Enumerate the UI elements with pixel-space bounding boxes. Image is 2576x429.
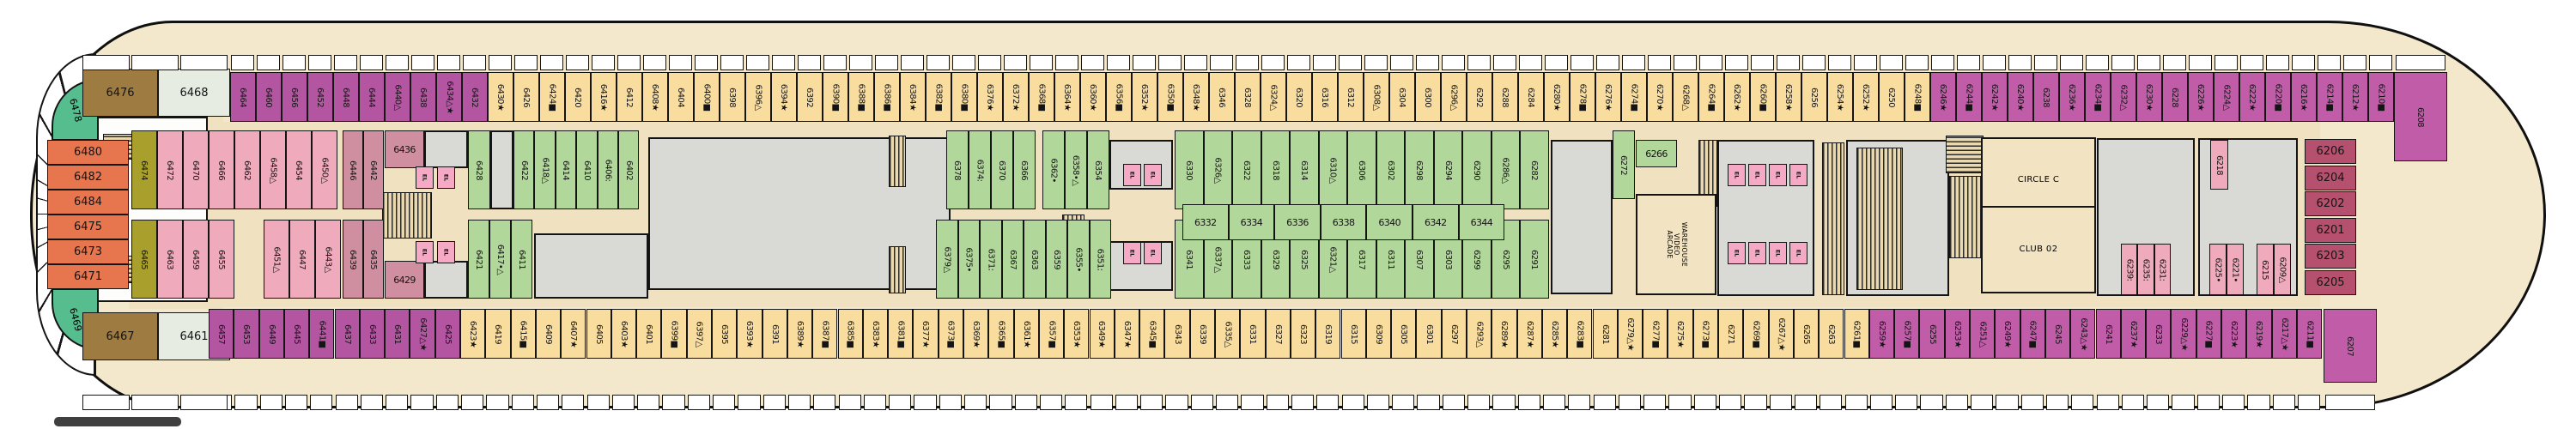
- cabin-6210: 6210■: [2368, 72, 2394, 122]
- cabin-6432: 6432: [462, 72, 488, 122]
- balcony: [361, 395, 383, 410]
- cabin-6302: 6302: [1376, 130, 1406, 209]
- cabin-6231: 6231:: [2154, 244, 2171, 295]
- balcony: [2240, 55, 2263, 70]
- balcony: [2197, 395, 2220, 410]
- balcony: [1236, 55, 1259, 70]
- cabin-6276: 6276★: [1595, 72, 1621, 122]
- elevator-cell: EL: [1789, 242, 1807, 264]
- balcony: [2325, 395, 2375, 410]
- cabin-6457: 6457: [209, 309, 234, 359]
- cabin-6394: 6394★: [771, 72, 797, 122]
- balcony: [1267, 395, 1289, 410]
- room-club02: CLUB 02: [1981, 206, 2096, 293]
- balcony: [1744, 395, 1766, 410]
- cabin-6447: 6447: [289, 220, 315, 299]
- balcony: [1880, 55, 1903, 70]
- cabin-6292: 6292: [1467, 72, 1492, 122]
- balcony: [231, 55, 254, 70]
- balcony: [2122, 395, 2144, 410]
- balcony: [1004, 55, 1027, 70]
- balcony: [592, 55, 615, 70]
- balcony: [2369, 55, 2392, 70]
- elevator-cell: EL: [1144, 242, 1162, 264]
- cabin-6338: 6338: [1321, 204, 1367, 240]
- balcony: [1492, 395, 1515, 410]
- cabin-6348: 6348★: [1183, 72, 1209, 122]
- cabin-6446: 6446: [343, 130, 363, 209]
- cabin-6243: 6243△★: [2070, 309, 2095, 359]
- interior-room: [1551, 140, 1613, 294]
- cabin-6452: 6452: [307, 72, 333, 122]
- cabin-6468: 6468: [158, 69, 230, 117]
- cabin-6355: 6355•: [1067, 220, 1090, 299]
- elevator-cell: EL: [1789, 164, 1807, 186]
- cabin-6385: 6385■: [838, 309, 863, 359]
- cabin-6209: 6209△: [2274, 244, 2291, 295]
- balcony: [662, 395, 684, 410]
- cabin-6393: 6393★: [737, 309, 762, 359]
- cabin-6368: 6368■: [1029, 72, 1054, 122]
- cabin-6465: 6465: [131, 220, 157, 299]
- cabin-6424: 6424■: [539, 72, 565, 122]
- balcony: [461, 395, 483, 410]
- balcony: [1519, 55, 1542, 70]
- balcony: [489, 55, 512, 70]
- cabin-6253: 6253★: [1945, 309, 1970, 359]
- balcony: [411, 55, 434, 70]
- cabin-6473: 6473: [47, 239, 129, 264]
- balcony: [798, 55, 821, 70]
- cabin-6260: 6260■: [1750, 72, 1776, 122]
- balcony: [436, 395, 459, 410]
- cabin-6227: 6227■: [2196, 309, 2221, 359]
- cabin-6234: 6234■: [2085, 72, 2111, 122]
- balcony: [1828, 55, 1851, 70]
- balcony: [2396, 55, 2445, 70]
- cabin-6327: 6327: [1266, 309, 1291, 359]
- balcony: [1920, 395, 1942, 410]
- cabin-6377: 6377★: [913, 309, 938, 359]
- cabin-6335: 6335△: [1215, 309, 1240, 359]
- balcony: [643, 55, 666, 70]
- balcony: [1443, 395, 1465, 410]
- balcony: [1648, 55, 1671, 70]
- balcony: [512, 395, 534, 410]
- cabin-6369: 6369★: [963, 309, 988, 359]
- room-arcade: WAREHOUSE VIDEO ARCADE: [1636, 194, 1716, 295]
- balcony: [1905, 55, 1929, 70]
- balcony: [788, 395, 811, 410]
- interior-room: [490, 130, 513, 209]
- balcony: [260, 395, 283, 410]
- cabin-6444: 6444: [359, 72, 385, 122]
- cabin-6240: 6240★: [2008, 72, 2033, 122]
- stairs-icon: [1822, 142, 1844, 295]
- balcony: [2292, 55, 2315, 70]
- cabin-6305: 6305: [1391, 309, 1416, 359]
- cabin-6396: 6396△: [745, 72, 771, 122]
- cabin-6482: 6482: [47, 165, 129, 190]
- balcony: [310, 395, 332, 410]
- cabin-6250: 6250: [1879, 72, 1905, 122]
- balcony: [386, 395, 408, 410]
- cabin-6284: 6284: [1518, 72, 1544, 122]
- balcony: [901, 55, 924, 70]
- cabin-6364: 6364★: [1054, 72, 1080, 122]
- balcony: [1210, 55, 1233, 70]
- elevator-cell: EL: [1748, 164, 1766, 186]
- cabin-6362: 6362•: [1042, 130, 1065, 209]
- elevator-cell: EL: [416, 166, 434, 189]
- balcony: [463, 55, 486, 70]
- elevator-cell: EL: [1769, 164, 1787, 186]
- balcony: [1184, 55, 1207, 70]
- stairs-icon: [1949, 176, 1982, 258]
- cabin-6358: 6358•△: [1065, 130, 1087, 209]
- cabin-6411: 6411: [511, 220, 532, 299]
- balcony: [1313, 55, 1336, 70]
- cabin-6438: 6438: [410, 72, 436, 122]
- cabin-6263: 6263: [1819, 309, 1844, 359]
- balcony: [1895, 395, 1917, 410]
- interior-room: [424, 261, 468, 299]
- cabin-6218: 6218: [2210, 140, 2228, 190]
- balcony: [1261, 55, 1285, 70]
- elevator-cell: EL: [1748, 242, 1766, 264]
- balcony: [1040, 395, 1062, 410]
- cabin-6398: 6398: [720, 72, 745, 122]
- cabin-6431: 6431: [385, 309, 410, 359]
- cabin-6352: 6352★: [1132, 72, 1157, 122]
- cabin-6459: 6459: [183, 220, 209, 299]
- cabin-6224: 6224△: [2214, 72, 2239, 122]
- cabin-6315: 6315: [1341, 309, 1366, 359]
- balcony: [720, 55, 744, 70]
- balcony: [2060, 55, 2083, 70]
- cabin-6286: 6286△: [1492, 130, 1521, 209]
- cabin-6448: 6448: [333, 72, 359, 122]
- cabin-6271: 6271: [1718, 309, 1743, 359]
- balcony: [410, 395, 433, 410]
- cabin-6384: 6384★: [900, 72, 926, 122]
- balcony: [1241, 395, 1263, 410]
- balcony: [914, 395, 936, 410]
- balcony: [875, 55, 898, 70]
- balcony: [939, 395, 962, 410]
- stairs-icon: [1856, 148, 1903, 290]
- balcony: [1996, 395, 2018, 410]
- cabin-6462: 6462: [234, 130, 260, 209]
- cabin-6342: 6342: [1413, 204, 1459, 240]
- cabin-6289: 6289★: [1492, 309, 1516, 359]
- cabin-6255: 6255: [1919, 309, 1944, 359]
- stairs-icon: [1946, 136, 1984, 173]
- balcony: [180, 55, 228, 70]
- cabin-6386: 6386■: [874, 72, 900, 122]
- balcony: [889, 395, 911, 410]
- balcony: [688, 395, 710, 410]
- cabin-6416: 6416★: [591, 72, 617, 122]
- cabin-6230: 6230★: [2136, 72, 2162, 122]
- cabin-6242: 6242★: [1982, 72, 2008, 122]
- cabin-6247: 6247■: [2020, 309, 2045, 359]
- cabin-6285: 6285★: [1542, 309, 1567, 359]
- cabin-6422: 6422: [513, 130, 534, 209]
- cabin-6201: 6201: [2305, 218, 2356, 243]
- balcony: [1543, 395, 1565, 410]
- cabin-6375: 6375•: [958, 220, 981, 299]
- balcony: [1983, 55, 2006, 70]
- balcony: [1870, 395, 1893, 410]
- cabin-6334: 6334: [1229, 204, 1275, 240]
- balcony: [283, 55, 306, 70]
- balcony: [540, 55, 563, 70]
- cabin-6258: 6258★: [1776, 72, 1801, 122]
- balcony: [1091, 395, 1113, 410]
- cabin-6383: 6383★: [863, 309, 888, 359]
- cabin-6354: 6354: [1087, 130, 1109, 209]
- balcony: [1493, 55, 1516, 70]
- balcony: [713, 395, 735, 410]
- cabin-6326: 6326△: [1204, 130, 1233, 209]
- cabin-6225: 6225•: [2209, 244, 2227, 295]
- cabin-6470: 6470: [183, 130, 209, 209]
- cabin-6300: 6300: [1415, 72, 1441, 122]
- cabin-6454: 6454: [286, 130, 312, 209]
- cabin-6441: 6441■: [309, 309, 334, 359]
- balcony: [437, 55, 460, 70]
- cabin-6279: 6279△★: [1618, 309, 1643, 359]
- cabin-6374: 6374:: [969, 130, 991, 209]
- balcony: [1622, 55, 1645, 70]
- balcony: [1725, 55, 1748, 70]
- cabin-6283: 6283■: [1567, 309, 1592, 359]
- balcony: [131, 395, 179, 410]
- cabin-6443: 6443△: [315, 220, 341, 299]
- cabin-6262: 6262★: [1724, 72, 1750, 122]
- cabin-6245: 6245: [2045, 309, 2070, 359]
- balcony: [1643, 395, 1666, 410]
- cabin-6270: 6270★: [1647, 72, 1673, 122]
- cabin-6282: 6282: [1520, 130, 1549, 209]
- balcony: [2086, 55, 2109, 70]
- cabin-6320: 6320: [1286, 72, 1312, 122]
- balcony: [839, 395, 861, 410]
- cabin-6229: 6229△★: [2171, 309, 2196, 359]
- balcony: [2034, 55, 2057, 70]
- balcony: [82, 395, 130, 410]
- cabin-6319: 6319: [1315, 309, 1340, 359]
- balcony: [1015, 395, 1037, 410]
- cabin-6445: 6445: [284, 309, 309, 359]
- cabin-6390: 6390■: [823, 72, 848, 122]
- cabin-6268: 6268△: [1673, 72, 1698, 122]
- balcony: [669, 55, 692, 70]
- cabin-6219: 6219★: [2246, 309, 2271, 359]
- cabin-6274: 6274■: [1621, 72, 1647, 122]
- cabin-6372: 6372★: [1003, 72, 1029, 122]
- balcony: [1795, 395, 1817, 410]
- cabin-6347: 6347★: [1115, 309, 1139, 359]
- cabin-6451: 6451△: [264, 220, 289, 299]
- cabin-6340: 6340: [1366, 204, 1413, 240]
- cabin-6288: 6288: [1492, 72, 1518, 122]
- cabin-6287: 6287★: [1517, 309, 1542, 359]
- cabin-6433: 6433: [360, 309, 385, 359]
- balcony: [334, 55, 357, 70]
- cabin-6267: 6267△★: [1769, 309, 1794, 359]
- balcony: [1107, 55, 1130, 70]
- cabin-6418: 6418△: [534, 130, 555, 209]
- cabin-6366: 6366: [1013, 130, 1036, 209]
- cabin-6371: 6371:: [980, 220, 1002, 299]
- stairs-icon: [889, 246, 906, 293]
- cabin-6404: 6404: [668, 72, 694, 122]
- cabin-6244: 6244■: [1956, 72, 1982, 122]
- cabin-6475: 6475: [47, 214, 129, 239]
- balcony: [2298, 395, 2320, 410]
- cabin-6430: 6430★: [488, 72, 513, 122]
- cabin-6309: 6309: [1366, 309, 1391, 359]
- cabin-6316: 6316: [1312, 72, 1338, 122]
- balcony: [1845, 395, 1868, 410]
- balcony: [612, 395, 635, 410]
- cabin-6403: 6403★: [611, 309, 636, 359]
- elevator-cell: EL: [1123, 164, 1141, 186]
- balcony: [1777, 55, 1800, 70]
- balcony: [849, 55, 872, 70]
- balcony: [234, 395, 257, 410]
- balcony: [562, 395, 584, 410]
- cabin-6472: 6472: [157, 130, 183, 209]
- cabin-6429: 6429: [385, 261, 424, 299]
- balcony: [1367, 395, 1389, 410]
- balcony: [964, 395, 987, 410]
- cabin-6278: 6278■: [1570, 72, 1595, 122]
- cabin-6435: 6435: [363, 220, 384, 299]
- balcony: [131, 55, 179, 70]
- cabin-6420: 6420: [565, 72, 591, 122]
- cabin-6207: 6207: [2324, 309, 2377, 383]
- cabin-6215: 6215: [2257, 244, 2274, 295]
- cabin-6301: 6301: [1416, 309, 1441, 359]
- cabin-6273: 6273■: [1693, 309, 1718, 359]
- cabin-6442: 6442: [363, 130, 384, 209]
- cabin-6426: 6426: [513, 72, 539, 122]
- cabin-6467: 6467: [82, 312, 158, 360]
- cabin-6382: 6382■: [926, 72, 951, 122]
- balcony: [1055, 55, 1078, 70]
- cabin-6328: 6328: [1235, 72, 1261, 122]
- cabin-6367: 6367: [1002, 220, 1024, 299]
- cabin-6419: 6419: [485, 309, 510, 359]
- cabin-6236: 6236★: [2059, 72, 2085, 122]
- cabin-6222: 6222★: [2239, 72, 2265, 122]
- cabin-6349: 6349★: [1090, 309, 1115, 359]
- cabin-6332: 6332: [1182, 204, 1229, 240]
- balcony: [1719, 395, 1741, 410]
- legend-bar: [54, 417, 181, 426]
- cabin-6449: 6449: [259, 309, 284, 359]
- balcony: [1133, 55, 1156, 70]
- balcony: [1820, 395, 1842, 410]
- balcony: [1668, 395, 1691, 410]
- cabin-6232: 6232△: [2111, 72, 2136, 122]
- cabin-6261: 6261■: [1844, 309, 1869, 359]
- balcony: [1971, 395, 1993, 410]
- cabin-6205: 6205: [2305, 270, 2356, 295]
- elevator-cell: EL: [416, 241, 434, 263]
- cabin-6259: 6259★: [1869, 309, 1894, 359]
- cabin-6399: 6399■: [661, 309, 686, 359]
- balcony: [2111, 55, 2135, 70]
- balcony: [566, 55, 589, 70]
- cabin-6460: 6460: [256, 72, 282, 122]
- cabin-6378: 6378: [946, 130, 969, 209]
- balcony: [637, 395, 659, 410]
- cabin-6436: 6436: [385, 130, 424, 168]
- balcony: [1594, 395, 1616, 410]
- cabin-6293: 6293△: [1467, 309, 1492, 359]
- balcony: [1342, 395, 1364, 410]
- cabin-6346: 6346: [1209, 72, 1235, 122]
- balcony: [1957, 55, 1980, 70]
- cabin-6395: 6395: [712, 309, 737, 359]
- cabin-6425: 6425: [435, 309, 460, 359]
- balcony: [1115, 395, 1138, 410]
- balcony: [1316, 395, 1339, 410]
- balcony: [514, 55, 538, 70]
- balcony: [2163, 55, 2186, 70]
- balcony: [1931, 55, 1954, 70]
- interior-room: [534, 233, 648, 299]
- cabin-6437: 6437: [335, 309, 360, 359]
- cabin-6298: 6298: [1405, 130, 1434, 209]
- cabin-6453: 6453: [234, 309, 258, 359]
- cabin-6363: 6363: [1024, 220, 1046, 299]
- cabin-6400: 6400■: [694, 72, 720, 122]
- cabin-6388: 6388■: [848, 72, 874, 122]
- cabin-6296: 6296△: [1441, 72, 1467, 122]
- cabin-6322: 6322: [1232, 130, 1261, 209]
- balcony: [1751, 55, 1774, 70]
- cabin-6318: 6318: [1261, 130, 1291, 209]
- cabin-6376: 6376★: [977, 72, 1003, 122]
- cabin-6458: 6458△: [260, 130, 286, 209]
- cabin-6344: 6344: [1459, 204, 1505, 240]
- balcony: [1339, 55, 1362, 70]
- cabin-6415: 6415■: [511, 309, 536, 359]
- balcony: [537, 395, 559, 410]
- balcony: [1699, 55, 1722, 70]
- balcony: [2247, 395, 2269, 410]
- cabin-6360: 6360★: [1080, 72, 1106, 122]
- cabin-6208: 6208: [2394, 72, 2447, 161]
- cabin-6428: 6428: [468, 130, 490, 209]
- balcony: [587, 395, 610, 410]
- cabin-6206: 6206: [2305, 139, 2356, 164]
- balcony: [2046, 395, 2069, 410]
- cabin-6423: 6423★: [460, 309, 485, 359]
- balcony: [1694, 395, 1716, 410]
- balcony: [823, 55, 847, 70]
- cabin-6223: 6223★: [2221, 309, 2246, 359]
- balcony: [1467, 55, 1491, 70]
- balcony: [864, 395, 886, 410]
- cabin-6345: 6345■: [1139, 309, 1164, 359]
- interior-room: [424, 130, 468, 168]
